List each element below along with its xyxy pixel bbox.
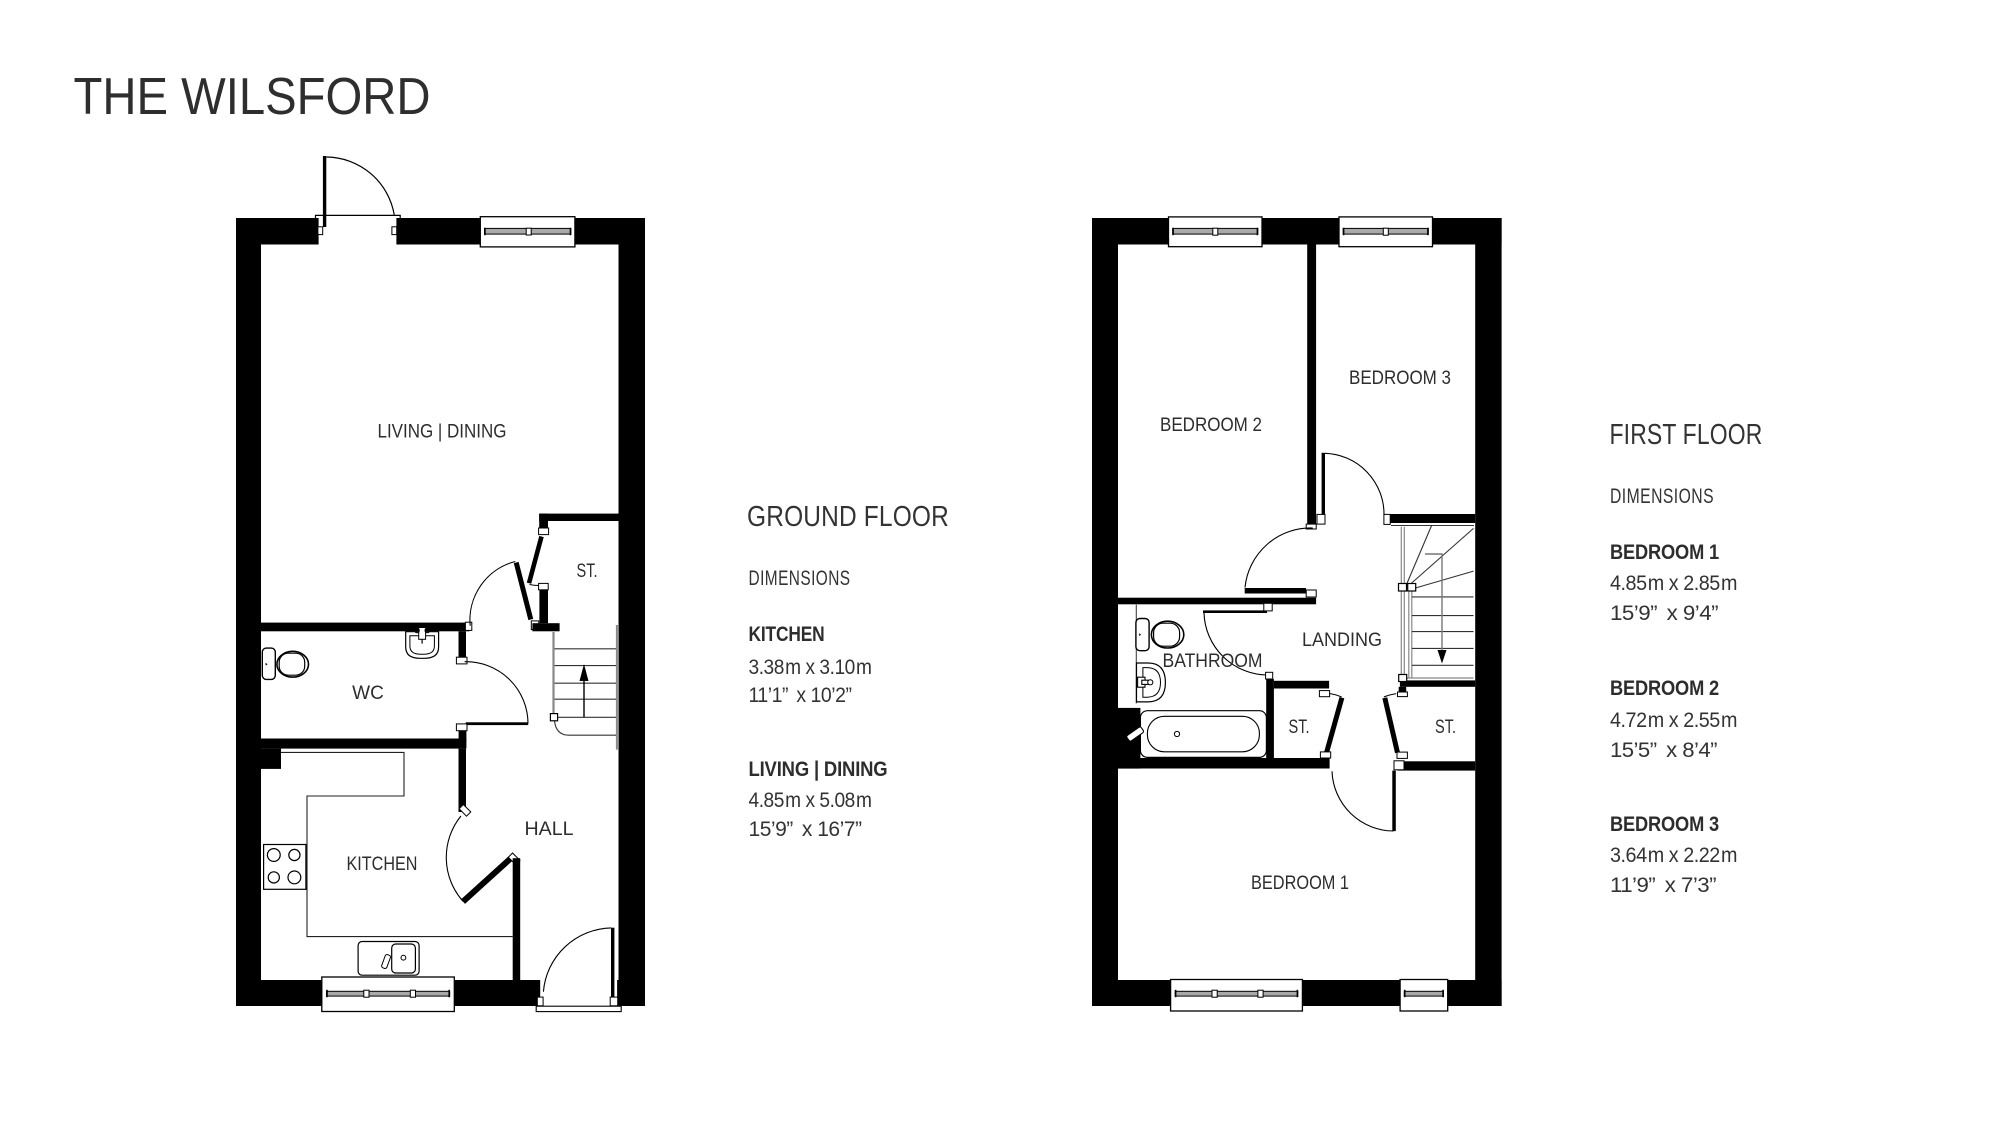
svg-text:DIMENSIONS: DIMENSIONS: [1610, 485, 1714, 508]
svg-text:4.85 m x 5.08 m: 4.85 m x 5.08 m: [749, 789, 872, 812]
svg-text:ST.: ST.: [1435, 717, 1456, 738]
svg-text:BATHROOM: BATHROOM: [1163, 651, 1263, 672]
svg-text:4.85 m x 2.85 m: 4.85 m x 2.85 m: [1610, 572, 1737, 595]
svg-text:BEDROOM 2: BEDROOM 2: [1160, 415, 1262, 436]
svg-text:BEDROOM 1: BEDROOM 1: [1610, 540, 1719, 564]
svg-text:BEDROOM 3: BEDROOM 3: [1349, 368, 1451, 389]
svg-text:11’1” x 10’2”: 11’1” x 10’2”: [749, 684, 852, 707]
svg-text:LANDING: LANDING: [1302, 630, 1382, 651]
svg-text:FIRST FLOOR: FIRST FLOOR: [1610, 419, 1763, 451]
svg-text:ST.: ST.: [1289, 717, 1310, 738]
svg-text:LIVING | DINING: LIVING | DINING: [378, 422, 507, 443]
svg-text:11’9” x 7’3”: 11’9” x 7’3”: [1610, 874, 1717, 897]
svg-text:BEDROOM 2: BEDROOM 2: [1610, 676, 1719, 700]
svg-text:BEDROOM 3: BEDROOM 3: [1610, 812, 1719, 836]
svg-text:3.38 m x 3.10 m: 3.38 m x 3.10 m: [749, 656, 872, 679]
svg-text:LIVING | DINING: LIVING | DINING: [749, 757, 888, 781]
svg-text:KITCHEN: KITCHEN: [347, 854, 418, 875]
svg-text:KITCHEN: KITCHEN: [749, 622, 825, 646]
svg-text:ST.: ST.: [577, 561, 598, 582]
svg-text:DIMENSIONS: DIMENSIONS: [749, 567, 851, 590]
svg-text:15’9” x 9’4”: 15’9” x 9’4”: [1610, 602, 1719, 625]
svg-text:WC: WC: [352, 683, 384, 704]
svg-text:3.64 m x 2.22 m: 3.64 m x 2.22 m: [1610, 844, 1737, 867]
svg-text:BEDROOM 1: BEDROOM 1: [1251, 873, 1349, 894]
svg-text:15’9” x 16’7”: 15’9” x 16’7”: [749, 818, 863, 841]
svg-text:HALL: HALL: [525, 819, 574, 840]
svg-text:15’5” x 8’4”: 15’5” x 8’4”: [1610, 739, 1718, 762]
svg-text:THE WILSFORD: THE WILSFORD: [74, 68, 431, 126]
svg-text:4.72 m x 2.55 m: 4.72 m x 2.55 m: [1610, 709, 1737, 732]
svg-text:GROUND FLOOR: GROUND FLOOR: [747, 501, 949, 533]
